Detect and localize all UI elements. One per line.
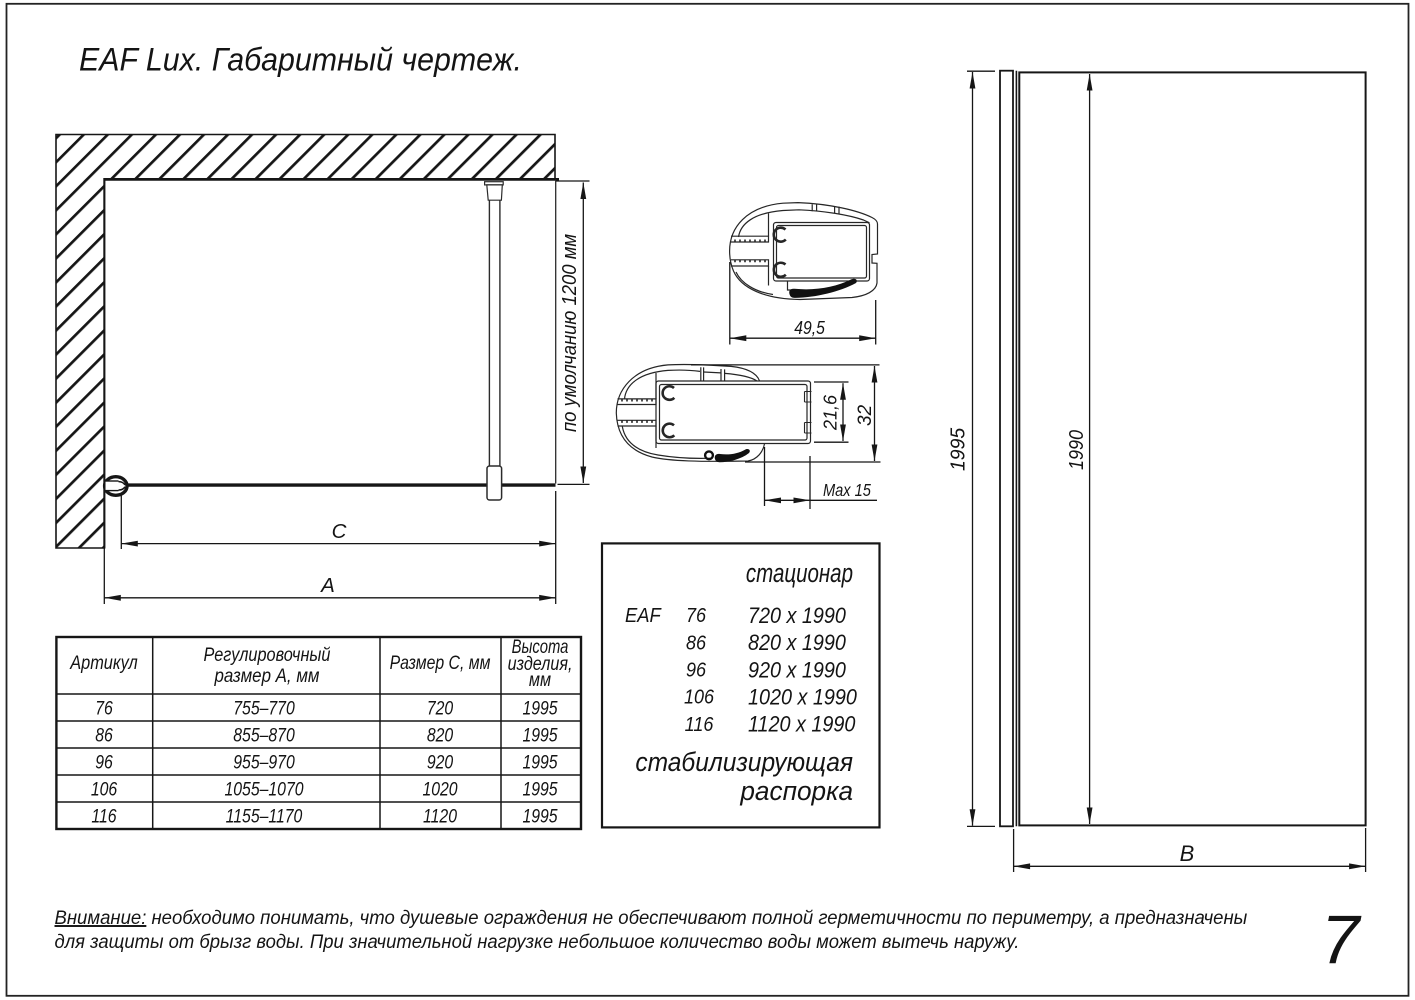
svg-text:96: 96 [95, 751, 113, 773]
svg-text:1120: 1120 [423, 805, 457, 827]
svg-text:76: 76 [95, 697, 113, 719]
svg-text:106: 106 [684, 687, 714, 709]
svg-text:1995: 1995 [522, 778, 557, 800]
svg-text:1990: 1990 [1066, 430, 1088, 470]
svg-text:920: 920 [427, 751, 453, 773]
svg-text:размер А, мм: размер А, мм [214, 665, 320, 686]
svg-text:86: 86 [686, 632, 706, 654]
svg-text:1120 x 1990: 1120 x 1990 [748, 713, 856, 737]
svg-text:820 x 1990: 820 x 1990 [748, 631, 846, 655]
svg-text:1995: 1995 [522, 805, 557, 827]
svg-text:1055–1070: 1055–1070 [224, 778, 303, 800]
svg-text:Размер C, мм: Размер C, мм [390, 652, 491, 674]
svg-text:820: 820 [427, 724, 453, 746]
svg-text:Max 15: Max 15 [823, 481, 871, 501]
svg-text:Регулировочный: Регулировочный [204, 644, 331, 665]
svg-text:1155–1170: 1155–1170 [226, 805, 303, 827]
svg-text:21,6: 21,6 [821, 394, 841, 431]
svg-text:C: C [332, 520, 347, 543]
svg-text:EAF Lux. Габаритный чертеж.: EAF Lux. Габаритный чертеж. [79, 42, 522, 78]
svg-text:Артикул: Артикул [69, 652, 137, 673]
svg-text:49,5: 49,5 [794, 317, 825, 339]
svg-text:стабилизирующая: стабилизирующая [635, 748, 853, 777]
svg-text:106: 106 [91, 778, 117, 800]
svg-text:для защиты от брызг воды. При: для защиты от брызг воды. При значительн… [55, 932, 1020, 954]
svg-text:1995: 1995 [522, 724, 557, 746]
svg-text:720: 720 [427, 697, 453, 719]
svg-text:76: 76 [686, 605, 706, 627]
svg-text:1995: 1995 [947, 428, 969, 471]
svg-text:по умолчанию 1200 мм: по умолчанию 1200 мм [559, 234, 581, 432]
svg-text:720 x 1990: 720 x 1990 [748, 604, 846, 628]
svg-text:1995: 1995 [522, 697, 557, 719]
svg-text:755–770: 755–770 [233, 697, 295, 719]
svg-text:EAF: EAF [625, 605, 662, 627]
svg-text:855–870: 855–870 [233, 724, 295, 746]
svg-text:96: 96 [686, 660, 706, 682]
svg-text:32: 32 [855, 404, 876, 426]
svg-text:86: 86 [95, 724, 113, 746]
svg-text:920 x 1990: 920 x 1990 [748, 658, 846, 682]
svg-text:1020: 1020 [422, 778, 457, 800]
svg-text:116: 116 [91, 805, 116, 827]
svg-text:1995: 1995 [522, 751, 557, 773]
svg-text:955–970: 955–970 [233, 751, 295, 773]
svg-text:B: B [1180, 841, 1195, 866]
svg-text:мм: мм [529, 669, 551, 691]
svg-text:A: A [319, 574, 335, 597]
svg-text:Внимание: необходимо понимать,: Внимание: необходимо понимать, что душев… [55, 908, 1248, 930]
svg-text:7: 7 [1321, 901, 1362, 978]
svg-text:стационар: стационар [746, 558, 853, 588]
svg-text:116: 116 [685, 714, 714, 736]
svg-text:1020 x 1990: 1020 x 1990 [748, 686, 857, 710]
svg-text:распорка: распорка [739, 776, 853, 806]
